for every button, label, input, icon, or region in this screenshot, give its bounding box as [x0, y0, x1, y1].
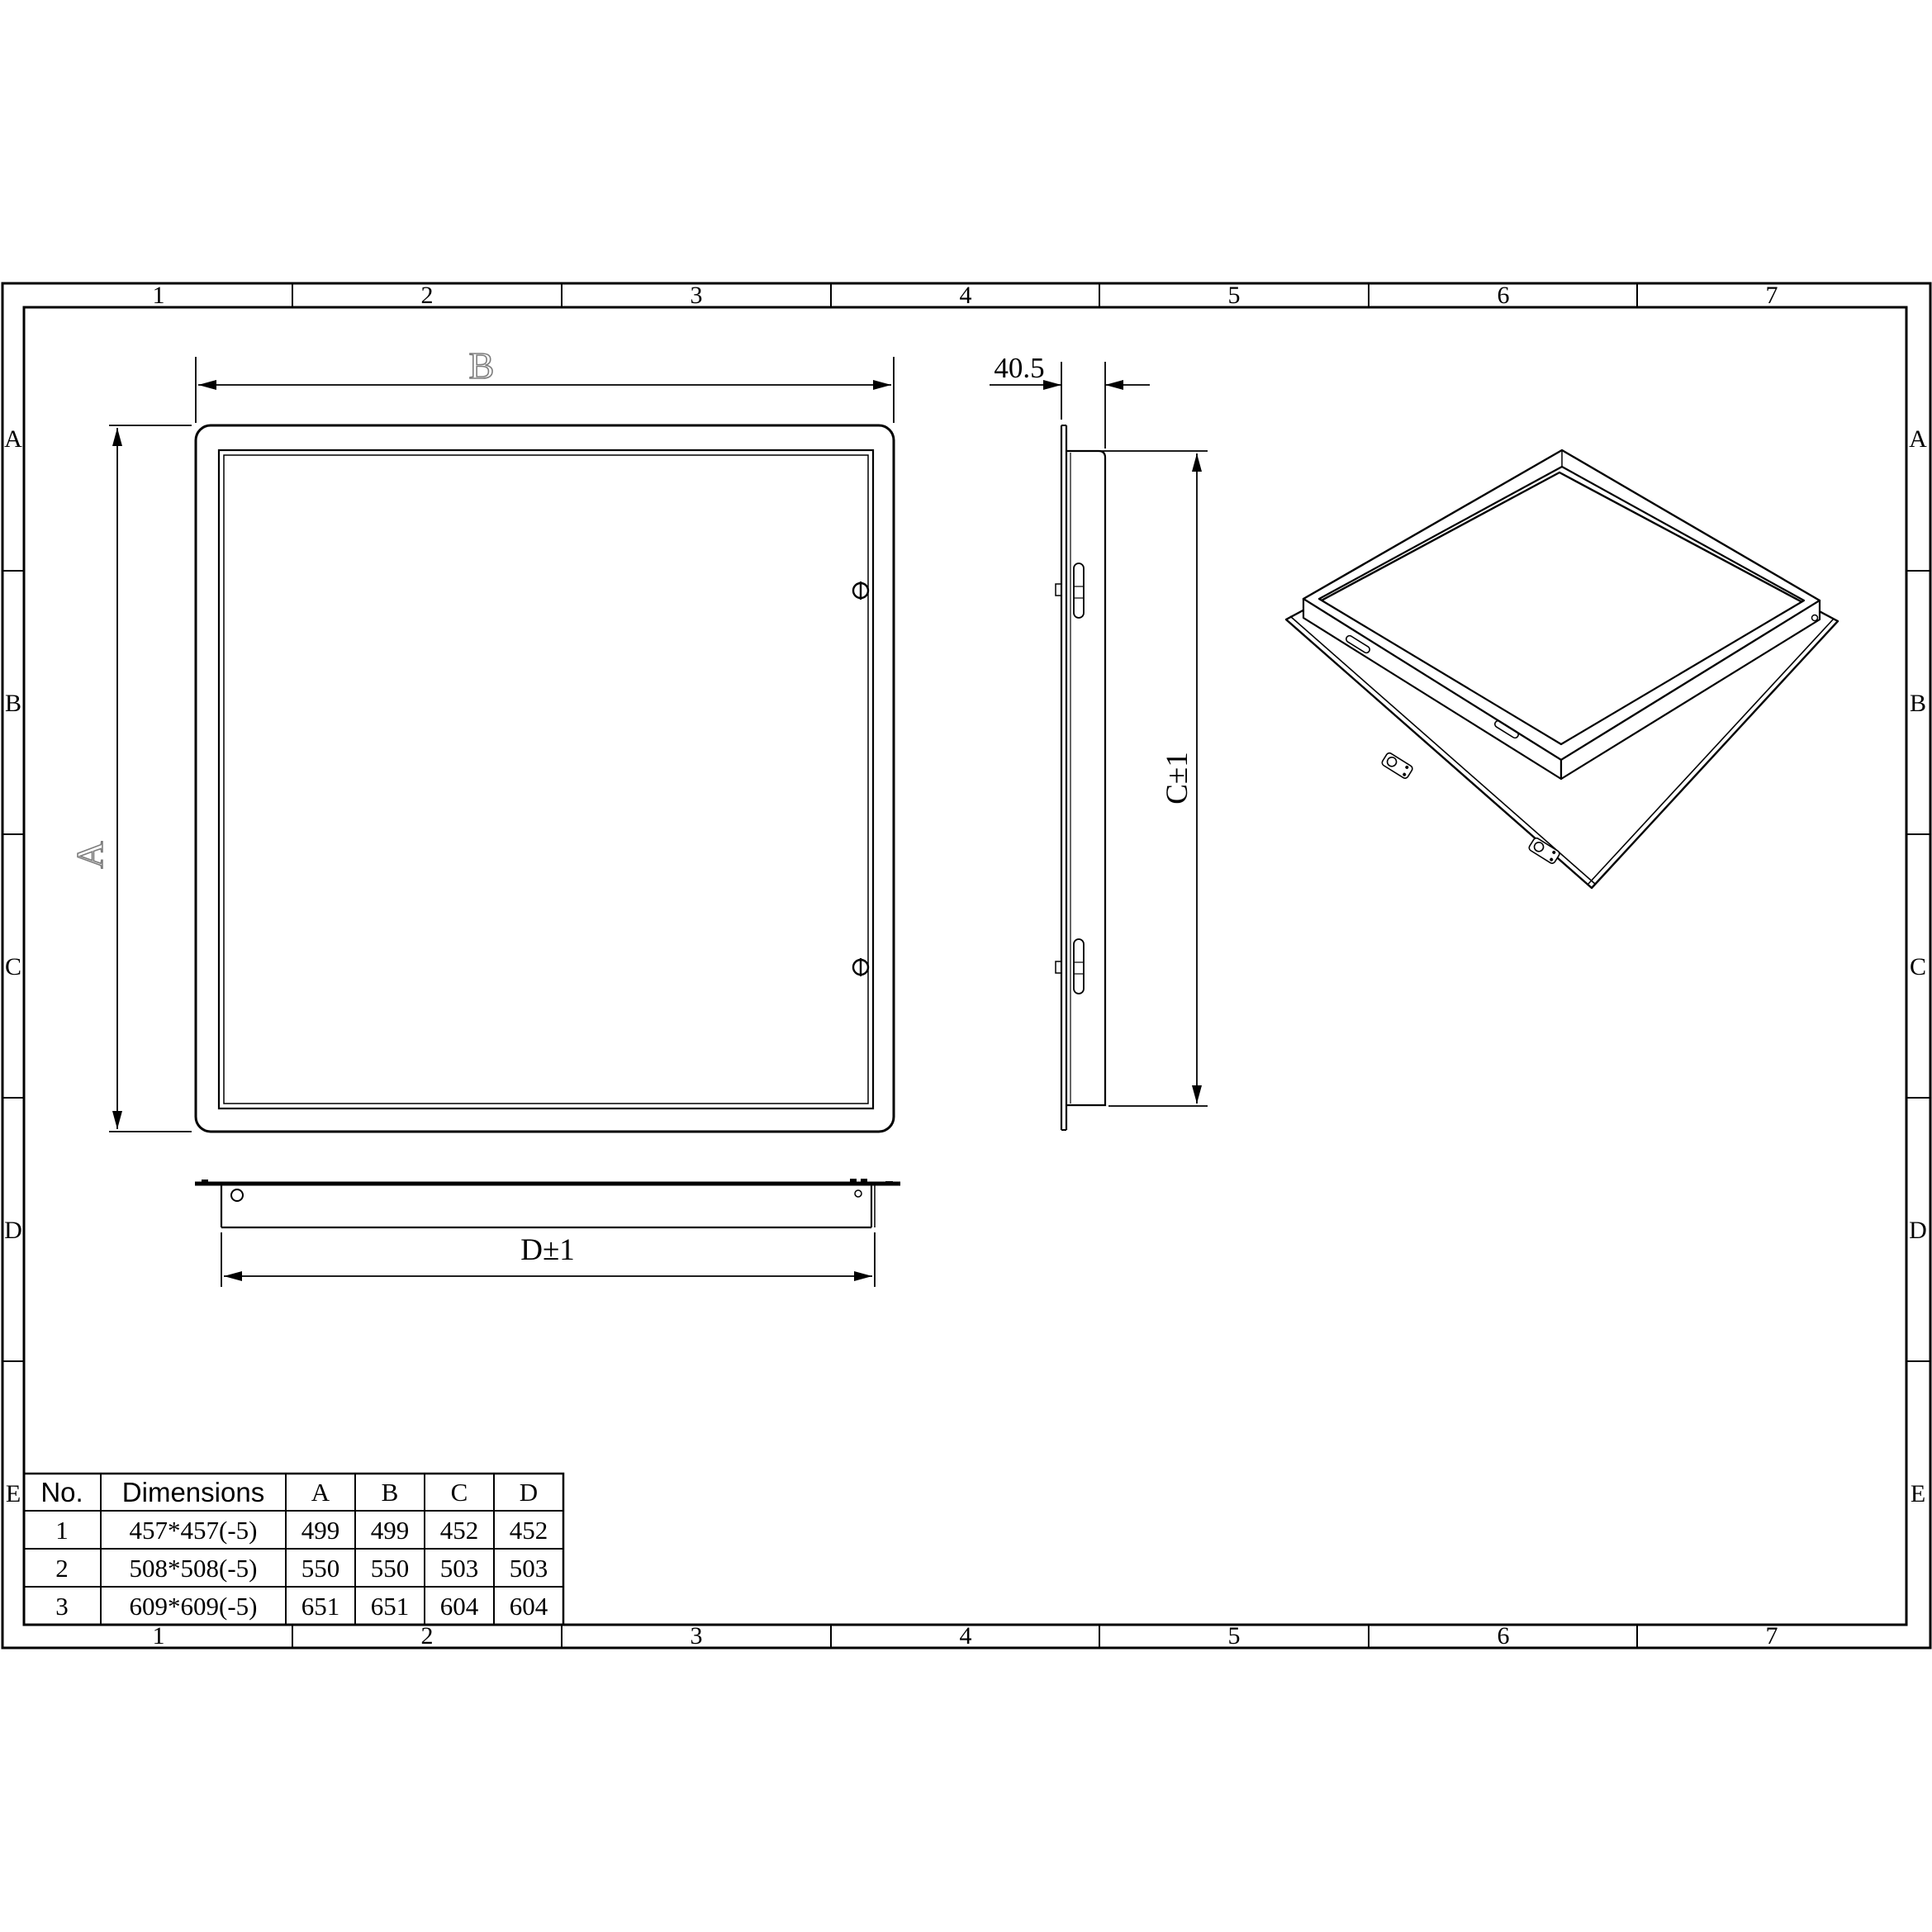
table-cell-a: 550: [301, 1554, 340, 1583]
screw-icon: [853, 958, 868, 976]
grid-labels: 1 2 3 4 5 6 7 1 2 3 4 5 6 7 A B C D E A …: [4, 282, 1927, 1650]
dimensions-table: [24, 1474, 563, 1625]
table-cell-b: 651: [371, 1592, 410, 1621]
table-header-d: D: [520, 1478, 538, 1507]
table-cell-d: 452: [510, 1516, 548, 1545]
front-view: [109, 357, 894, 1132]
table-cell-no: 2: [55, 1554, 69, 1583]
table-row: 1 457*457(-5) 499 499 452 452: [55, 1516, 548, 1545]
grid-row-label-left-c: C: [5, 953, 21, 980]
dim-front-width: [196, 357, 894, 423]
front-door-inner: [224, 455, 868, 1104]
table-row: 2 508*508(-5) 550 550 503 503: [55, 1554, 548, 1583]
front-view-labels: B A: [69, 344, 494, 869]
sheet-borders: [2, 283, 1930, 1648]
grid-row-label-left-e: E: [6, 1480, 21, 1507]
table-row: 3 609*609(-5) 651 651 604 604: [55, 1592, 548, 1621]
grid-row-label-right-b: B: [1910, 690, 1926, 717]
screw-icon: [853, 581, 868, 600]
bottom-hole: [231, 1189, 243, 1201]
table-cell-a: 651: [301, 1592, 340, 1621]
dim-label-bottom-width: D±1: [520, 1233, 575, 1267]
table-cell-no: 1: [55, 1516, 69, 1545]
sheet-border-inner: [24, 307, 1906, 1625]
table-header-no: No.: [40, 1477, 83, 1507]
grid-col-label-bottom-5: 5: [1228, 1622, 1241, 1650]
side-view-labels: 40.5 C±1: [994, 352, 1194, 805]
table-header-c: C: [451, 1478, 468, 1507]
table-header-a: A: [311, 1478, 330, 1507]
front-outer-frame: [196, 425, 894, 1132]
table-cell-no: 3: [55, 1592, 69, 1621]
dim-label-side-depth: 40.5: [994, 352, 1044, 384]
grid-row-label-right-d: D: [1909, 1217, 1927, 1244]
grid-col-label-top-7: 7: [1766, 282, 1778, 309]
sheet-border-outer: [2, 283, 1930, 1648]
table-cell-d: 503: [510, 1554, 548, 1583]
iso-door-panel: [1286, 472, 1838, 888]
side-slot: [1074, 563, 1084, 618]
table-cell-c: 452: [440, 1516, 479, 1545]
grid-col-label-bottom-7: 7: [1766, 1622, 1778, 1650]
side-view: [990, 362, 1208, 1130]
table-cell-c: 604: [440, 1592, 479, 1621]
table-cell-dimensions: 508*508(-5): [130, 1554, 258, 1583]
grid-row-label-left-b: B: [5, 690, 21, 717]
grid-row-label-right-e: E: [1911, 1480, 1925, 1507]
dim-front-height: [109, 425, 192, 1132]
grid-col-label-top-6: 6: [1498, 282, 1510, 309]
grid-col-label-bottom-1: 1: [153, 1622, 165, 1650]
grid-col-label-top-3: 3: [691, 282, 703, 309]
grid-row-label-left-a: A: [4, 425, 22, 453]
iso-latch: [1381, 752, 1414, 779]
table-cell-a: 499: [301, 1516, 340, 1545]
grid-col-label-bottom-2: 2: [421, 1622, 434, 1650]
dim-label-front-width: B: [469, 344, 495, 387]
front-door-outer: [219, 450, 873, 1108]
grid-row-label-left-d: D: [4, 1217, 22, 1244]
grid-row-label-right-a: A: [1909, 425, 1927, 453]
table-cell-d: 604: [510, 1592, 548, 1621]
grid-col-label-top-1: 1: [153, 282, 165, 309]
grid-col-label-bottom-4: 4: [960, 1622, 972, 1650]
grid-col-label-top-2: 2: [421, 282, 434, 309]
grid-col-label-bottom-6: 6: [1498, 1622, 1510, 1650]
table-cell-b: 550: [371, 1554, 410, 1583]
table-cell-dimensions: 609*609(-5): [130, 1592, 258, 1621]
table-cell-b: 499: [371, 1516, 410, 1545]
table-cell-dimensions: 457*457(-5): [130, 1516, 258, 1545]
grid-col-label-top-4: 4: [960, 282, 972, 309]
table-cell-c: 503: [440, 1554, 479, 1583]
dim-label-front-height: A: [69, 841, 111, 868]
side-slot: [1074, 939, 1084, 994]
grid-col-label-top-5: 5: [1228, 282, 1241, 309]
bottom-hole-small: [855, 1190, 862, 1197]
grid-row-label-right-c: C: [1910, 953, 1926, 980]
drawing-sheet: 1 2 3 4 5 6 7 1 2 3 4 5 6 7 A B C D E A …: [0, 0, 1932, 1932]
grid-col-label-bottom-3: 3: [691, 1622, 703, 1650]
isometric-view: [1286, 450, 1838, 888]
table-header-b: B: [382, 1478, 399, 1507]
table-header-dimensions: Dimensions: [122, 1477, 264, 1507]
dim-label-side-height: C±1: [1161, 752, 1194, 805]
